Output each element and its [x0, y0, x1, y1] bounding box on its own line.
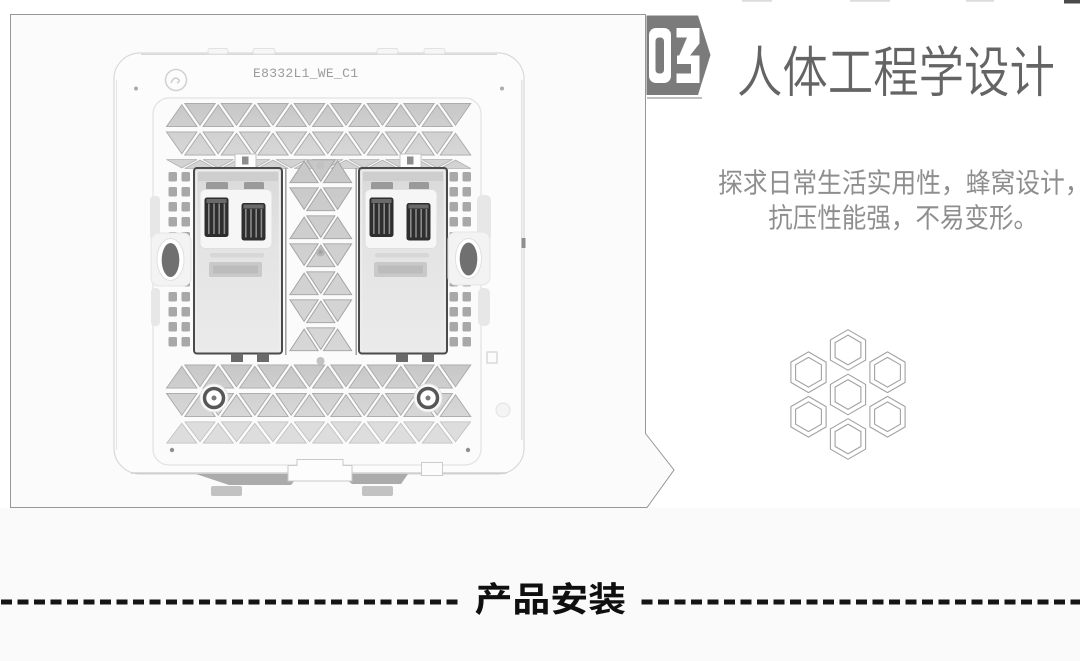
svg-text:E8332L1_WE_C1: E8332L1_WE_C1 — [253, 66, 358, 81]
